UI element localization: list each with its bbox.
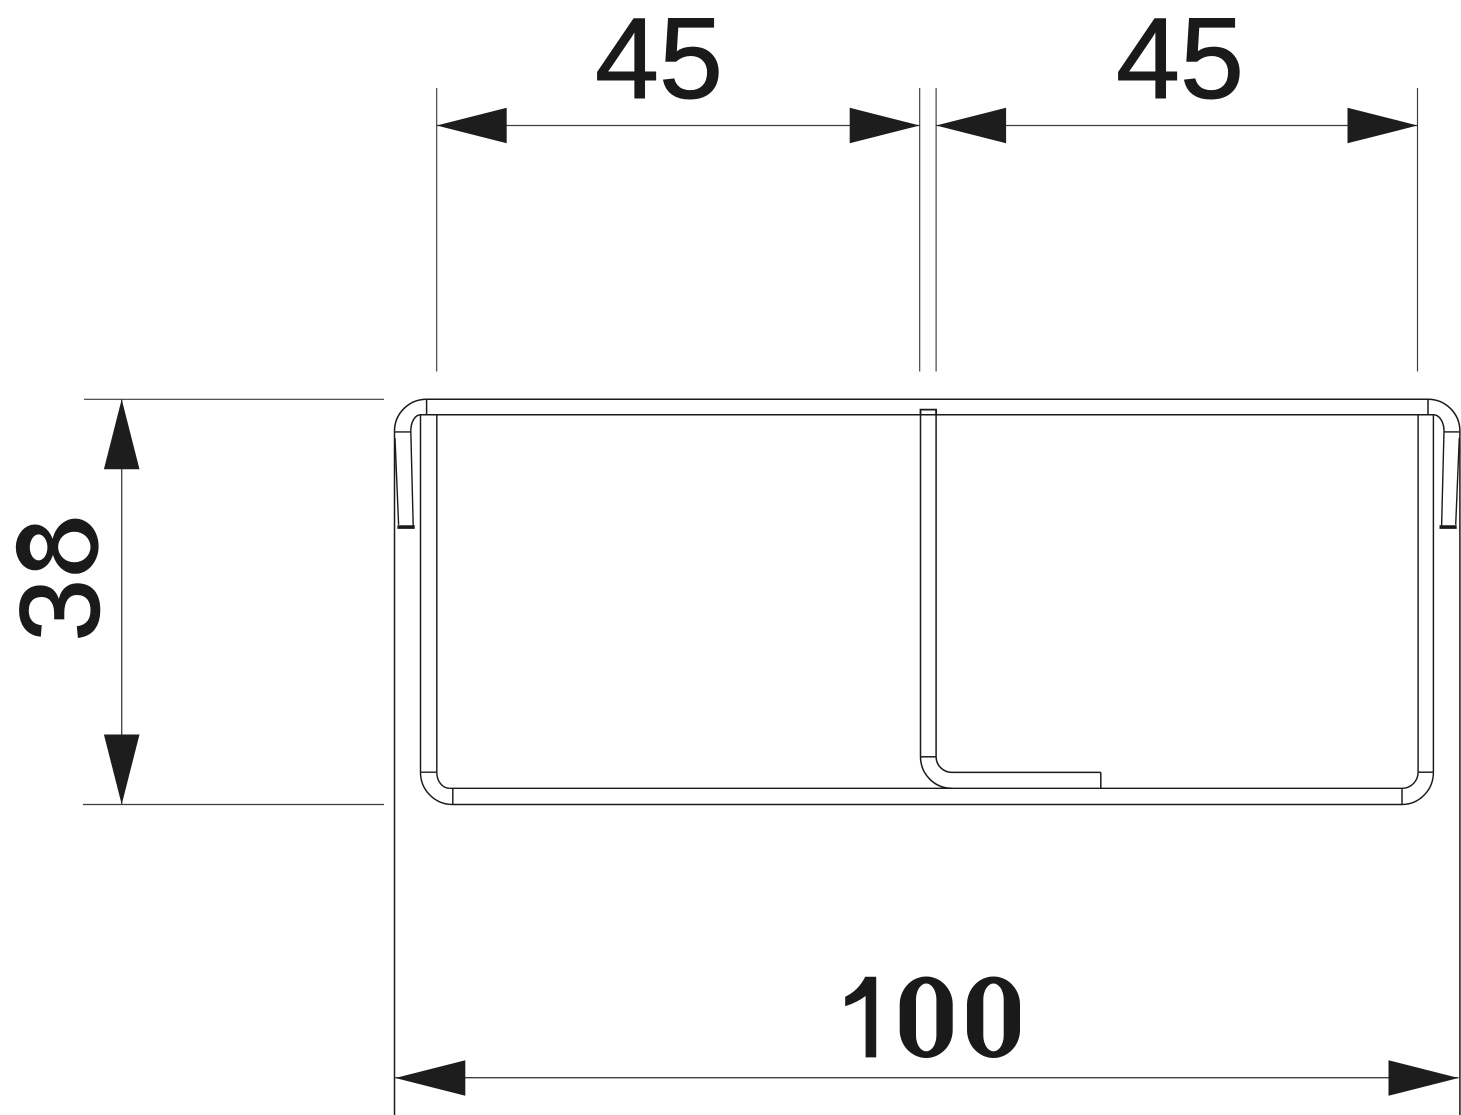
svg-text:45: 45 — [595, 0, 723, 123]
svg-text:45: 45 — [1116, 0, 1244, 123]
svg-text:3: 3 — [0, 579, 123, 641]
